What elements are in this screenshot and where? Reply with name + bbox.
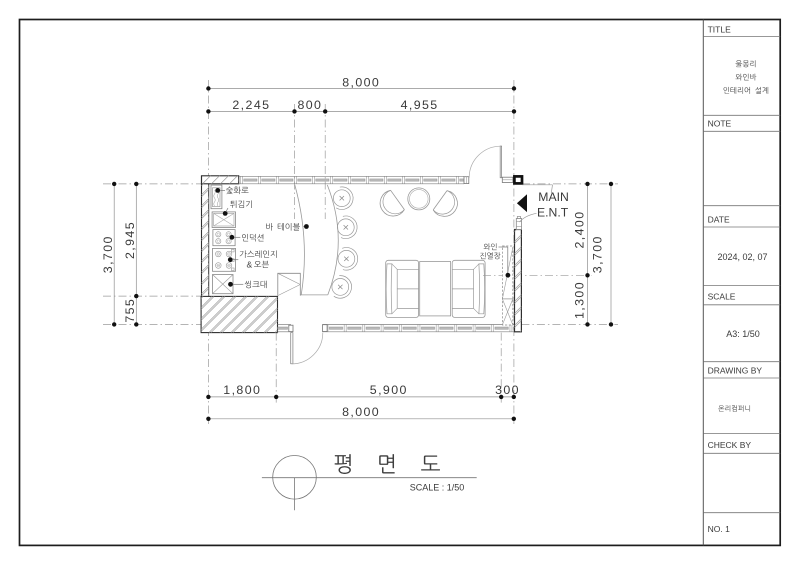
svg-text:8,000: 8,000 [342,75,380,89]
svg-text:MAIN: MAIN [538,190,568,204]
svg-text:4,955: 4,955 [401,98,439,112]
svg-text:DATE: DATE [708,215,730,225]
svg-text:3,700: 3,700 [101,235,115,273]
svg-text:CHECK BY: CHECK BY [708,440,752,450]
svg-text:SCALE : 1/50: SCALE : 1/50 [410,482,465,492]
svg-text:8,000: 8,000 [342,405,380,419]
svg-text:SCALE: SCALE [708,292,736,302]
svg-text:NO. 1: NO. 1 [708,524,730,534]
svg-text:&: & [247,259,253,269]
svg-text:755: 755 [123,298,137,323]
svg-text:2,400: 2,400 [573,210,587,248]
svg-text:3,700: 3,700 [590,235,604,273]
svg-text:800: 800 [297,98,322,112]
svg-text:300: 300 [495,383,520,397]
svg-text:2024, 02, 07: 2024, 02, 07 [717,252,767,262]
svg-text:1,300: 1,300 [573,281,587,319]
svg-text:DRAWING BY: DRAWING BY [708,366,763,376]
svg-text:5,900: 5,900 [370,383,408,397]
svg-text:E.N.T: E.N.T [537,206,569,220]
svg-text:2,245: 2,245 [232,98,270,112]
svg-text:A3: 1/50: A3: 1/50 [726,329,760,339]
svg-text:2,945: 2,945 [123,221,137,259]
svg-text:1,800: 1,800 [223,383,261,397]
svg-text:NOTE: NOTE [708,119,732,129]
svg-text:TITLE: TITLE [708,25,731,35]
